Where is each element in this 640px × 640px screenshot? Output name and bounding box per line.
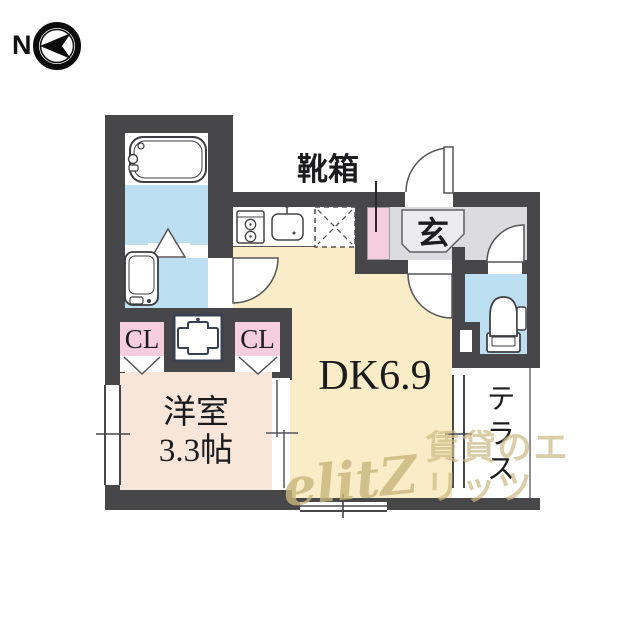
washroom-floor (125, 258, 208, 308)
toilet-door-gap (488, 260, 522, 274)
dk-label: DK6.9 (290, 350, 460, 402)
closet-right-door-gap (235, 356, 280, 372)
wall (208, 192, 405, 207)
wall (105, 490, 292, 510)
kitchen-counter (233, 207, 357, 247)
slider-door-strip (272, 378, 290, 490)
wall (452, 247, 465, 330)
wall (355, 260, 408, 274)
shoe-box (367, 207, 390, 260)
western-room-label-line1: 洋室 (163, 394, 229, 432)
north-label: N (12, 30, 32, 61)
floor-plan-canvas: N (0, 0, 640, 640)
bathroom-floor (125, 185, 208, 245)
western-room-label-line2: 3.3帖 (159, 432, 233, 470)
bathroom-tub-zone (125, 133, 208, 185)
bathroom-door-gap (148, 243, 190, 257)
terrace-label: テラス (478, 378, 518, 493)
washroom-door-gap (208, 258, 233, 308)
wall-notch-recess (460, 330, 472, 352)
western-room-label: 洋室 3.3帖 (120, 392, 272, 472)
hall-dk-door-gap (408, 260, 452, 274)
entrance-label: 玄 (402, 211, 464, 251)
wall (355, 207, 367, 260)
western-room-window (104, 385, 121, 485)
entrance-door-icon (406, 147, 453, 193)
closet-left-label: CL (120, 322, 164, 356)
wall (527, 192, 540, 368)
closet-right-label: CL (235, 322, 280, 356)
dk-bottom-window (300, 500, 387, 512)
entrance-door-threshold (405, 192, 453, 207)
shoe-box-label: 靴箱 (282, 146, 374, 186)
closet-left-door-gap (120, 356, 164, 372)
